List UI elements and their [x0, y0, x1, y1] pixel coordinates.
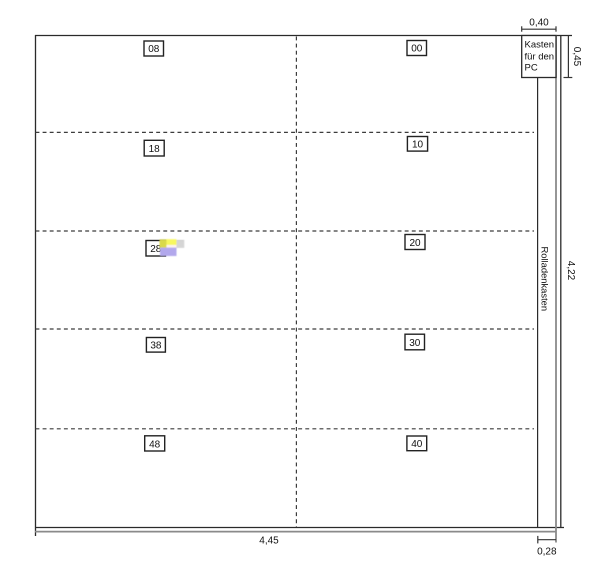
svg-text:Rolladenkasten: Rolladenkasten	[540, 246, 551, 311]
svg-text:0,40: 0,40	[529, 17, 549, 28]
svg-text:4,22: 4,22	[565, 261, 576, 281]
svg-text:30: 30	[409, 338, 421, 349]
svg-text:10: 10	[412, 140, 424, 151]
svg-text:4,45: 4,45	[259, 536, 279, 547]
svg-text:0,28: 0,28	[537, 546, 557, 557]
svg-text:für den: für den	[525, 52, 555, 63]
svg-text:Kasten: Kasten	[525, 39, 555, 50]
svg-text:0,45: 0,45	[571, 47, 582, 67]
svg-text:18: 18	[149, 144, 161, 155]
svg-text:20: 20	[409, 238, 421, 249]
svg-text:08: 08	[148, 44, 160, 55]
svg-text:48: 48	[149, 439, 161, 450]
svg-text:38: 38	[150, 341, 162, 352]
svg-text:40: 40	[411, 439, 423, 450]
svg-text:PC: PC	[525, 63, 538, 74]
svg-text:00: 00	[411, 44, 423, 55]
